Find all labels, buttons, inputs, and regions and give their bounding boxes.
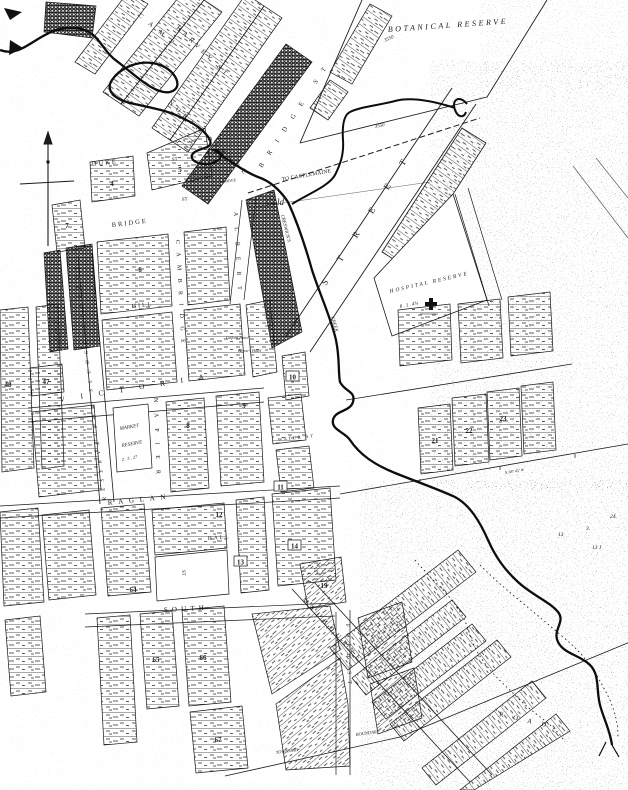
gold-label: Gold — [266, 197, 285, 207]
lot-block — [5, 616, 46, 696]
block-number-21: 21 — [432, 437, 440, 445]
block-number-23: 23 — [500, 415, 508, 423]
block-number-6: 6 — [138, 266, 142, 274]
block-number-12: 12 — [216, 511, 224, 519]
block-number-65: 65 — [153, 656, 161, 664]
block-number-19: 19 — [321, 582, 329, 590]
lot-block — [0, 508, 44, 606]
lot-block — [236, 497, 269, 593]
lot-block — [97, 234, 172, 314]
lot-block — [487, 388, 522, 460]
lot-block — [398, 304, 452, 366]
block-number-67: 67 — [215, 736, 223, 744]
lot-block — [184, 227, 230, 305]
duke-street-st-label: ST — [172, 157, 178, 163]
block-number-13: 13 — [237, 559, 245, 567]
block-number-5: 5 — [178, 166, 182, 174]
baynes-hotel-label: Bayne's Hotel — [238, 348, 262, 353]
lot-block — [184, 304, 245, 381]
lot-block — [140, 611, 179, 709]
lot-block — [216, 392, 264, 486]
hall-street-st-label: ST — [180, 570, 185, 576]
block-number-47: 47 — [43, 378, 51, 386]
market-reserve-block — [113, 404, 152, 472]
lot-block — [458, 299, 503, 363]
block-number-4: 4 — [110, 180, 114, 188]
lot-block — [508, 292, 553, 356]
corner-number-3: 3. — [585, 526, 590, 532]
lot-block — [32, 405, 101, 497]
corner-number-24: 24. — [610, 513, 617, 520]
block-number-64: 64 — [130, 586, 138, 594]
block-number-48: 48 — [5, 381, 13, 389]
block-number-22: 22 — [466, 427, 474, 435]
block-number-11: 11 — [277, 484, 284, 492]
lot-block — [182, 606, 231, 706]
lot-block — [97, 615, 137, 745]
open-block — [155, 550, 229, 601]
block-number-10: 10 — [289, 374, 297, 382]
lot-block — [42, 510, 96, 600]
block-number-66: 66 — [200, 654, 208, 662]
gilford-hotel-label: Gilford Hotel — [226, 335, 249, 340]
lot-block — [0, 307, 34, 472]
map-canvas: BOTANICAL RESERVE CAMP HARVEY ST NORTH P… — [0, 0, 628, 790]
lot-block — [166, 398, 209, 492]
block-number-7: 7 — [65, 222, 69, 230]
lot-block — [521, 382, 556, 454]
corner-number-13: 13 — [558, 532, 564, 538]
bridge-town-st-label: ST — [182, 197, 188, 203]
block-number-9: 9 — [242, 402, 246, 410]
block-number-14: 14 — [291, 543, 299, 551]
lot-block — [101, 504, 151, 596]
block-number-8: 8 — [186, 422, 190, 430]
corner-number-13j: 13 J — [592, 545, 602, 551]
